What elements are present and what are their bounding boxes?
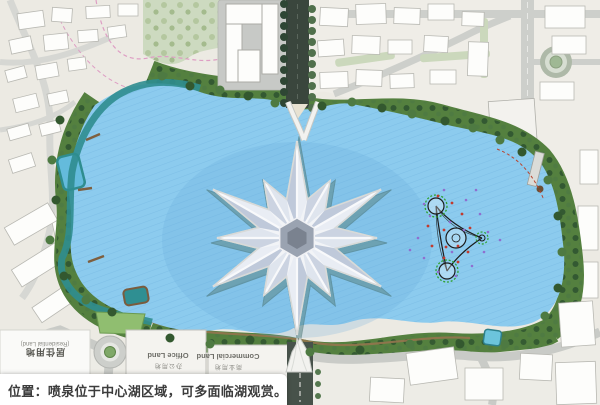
building (555, 361, 596, 404)
fountain-dot-purple (479, 213, 482, 216)
fountain-dot-red (445, 246, 448, 249)
building (388, 40, 412, 54)
tree (271, 99, 280, 108)
fountain-dot-purple (409, 249, 412, 252)
building (43, 33, 69, 51)
fountain-dot-purple (465, 199, 468, 202)
tree (306, 348, 315, 357)
tree (518, 148, 527, 157)
tree (356, 346, 365, 355)
tree (246, 336, 255, 345)
building (390, 74, 414, 89)
tree (308, 16, 316, 24)
building (582, 262, 598, 298)
building (519, 353, 552, 381)
tree (56, 116, 65, 125)
tree (308, 27, 316, 35)
building (430, 70, 456, 84)
building (78, 29, 99, 42)
fountain-dot-red (457, 245, 460, 248)
tree (186, 82, 195, 91)
tree (280, 44, 288, 52)
fountain-dot-purple (455, 275, 458, 278)
fountain-node (428, 198, 444, 214)
tree (280, 33, 288, 41)
building (467, 42, 488, 77)
tree (108, 308, 117, 317)
fountain-dot-red (427, 225, 430, 228)
west-pool (123, 286, 149, 306)
building (462, 12, 484, 27)
caption-text: 位置：喷泉位于中心湖区域，可多面临湖观赏。 (8, 381, 287, 400)
tree (280, 55, 288, 63)
tree (348, 98, 357, 107)
fountain-dot-purple (423, 257, 426, 260)
fountain-dot-purple (499, 239, 502, 242)
building (67, 57, 86, 71)
tree (558, 248, 567, 257)
tree (308, 93, 316, 101)
plaza-building (218, 0, 288, 90)
site-plan-screenshot: 居住用地 (Residential Land) 办公用地 Office Land… (0, 0, 600, 405)
tree (280, 66, 288, 74)
building (118, 4, 138, 16)
building (320, 72, 349, 89)
tree (441, 117, 450, 126)
tree (308, 82, 316, 90)
roundabout (94, 336, 126, 368)
tree (48, 156, 57, 165)
tree (544, 176, 553, 185)
fountain-dot-purple (475, 189, 478, 192)
building (580, 150, 598, 184)
tree (541, 312, 550, 321)
site-plan-map (0, 0, 600, 405)
tree (496, 136, 505, 145)
tree (554, 284, 563, 293)
tree (318, 102, 327, 111)
fountain-dot-purple (449, 221, 452, 224)
building (86, 5, 111, 18)
fountain-dot-red (457, 261, 460, 264)
building (320, 7, 349, 26)
building (369, 377, 404, 403)
tree (406, 340, 415, 349)
tree (46, 236, 55, 245)
tree (501, 340, 510, 349)
building (406, 347, 458, 385)
fountain-dot-purple (471, 265, 474, 268)
building (540, 82, 574, 100)
tree (158, 72, 167, 81)
fountain-dot-purple (443, 189, 446, 192)
fountain-dot-red (451, 202, 454, 205)
tree (60, 272, 69, 281)
fountain-node (439, 263, 455, 279)
fountain-dot-red (443, 257, 446, 260)
tree (280, 0, 288, 8)
building (352, 36, 381, 55)
fountain-dot-purple (417, 237, 420, 240)
tree (378, 104, 387, 113)
caption-bar: 位置：喷泉位于中心湖区域，可多面临湖观赏。 (0, 374, 287, 405)
tree (280, 88, 288, 96)
fountain-dot-purple (423, 203, 426, 206)
fountain-center (446, 228, 466, 248)
tree (308, 38, 316, 46)
fountain-dot-red (461, 213, 464, 216)
tree (308, 5, 316, 13)
building (545, 6, 585, 28)
fountain-dot-red (467, 251, 470, 254)
tree (308, 71, 316, 79)
fountain-dot-purple (483, 251, 486, 254)
building (356, 3, 387, 24)
building (52, 7, 73, 22)
fountain-dot-purple (487, 231, 490, 234)
tree (166, 334, 175, 343)
building (559, 301, 596, 347)
fountain-dot-red (437, 195, 440, 198)
building (428, 4, 454, 20)
tree (244, 92, 253, 101)
tree (280, 22, 288, 30)
tree (554, 212, 563, 221)
fountain-dot-purple (451, 251, 454, 254)
tree (52, 196, 61, 205)
fountain-dot-purple (429, 215, 432, 218)
tree (469, 124, 478, 133)
building (107, 25, 126, 39)
tree (456, 340, 465, 349)
building (424, 35, 449, 52)
fountain-dot-red (431, 245, 434, 248)
tree (206, 340, 215, 349)
fountain-dot-purple (437, 271, 440, 274)
building (317, 39, 344, 57)
tree (216, 86, 225, 95)
residential-parcel (0, 330, 90, 377)
east-pool (483, 329, 502, 346)
fountain-dot-red (443, 229, 446, 232)
tree (308, 60, 316, 68)
fountain-dot-red (469, 227, 472, 230)
tree (280, 77, 288, 85)
building (17, 10, 45, 29)
tree (408, 110, 417, 119)
tree (82, 296, 91, 305)
tree (308, 49, 316, 57)
tree (280, 11, 288, 19)
building (552, 36, 586, 54)
fountain-dot-purple (463, 229, 466, 232)
building (394, 8, 421, 25)
building (356, 70, 383, 87)
building (465, 368, 503, 400)
